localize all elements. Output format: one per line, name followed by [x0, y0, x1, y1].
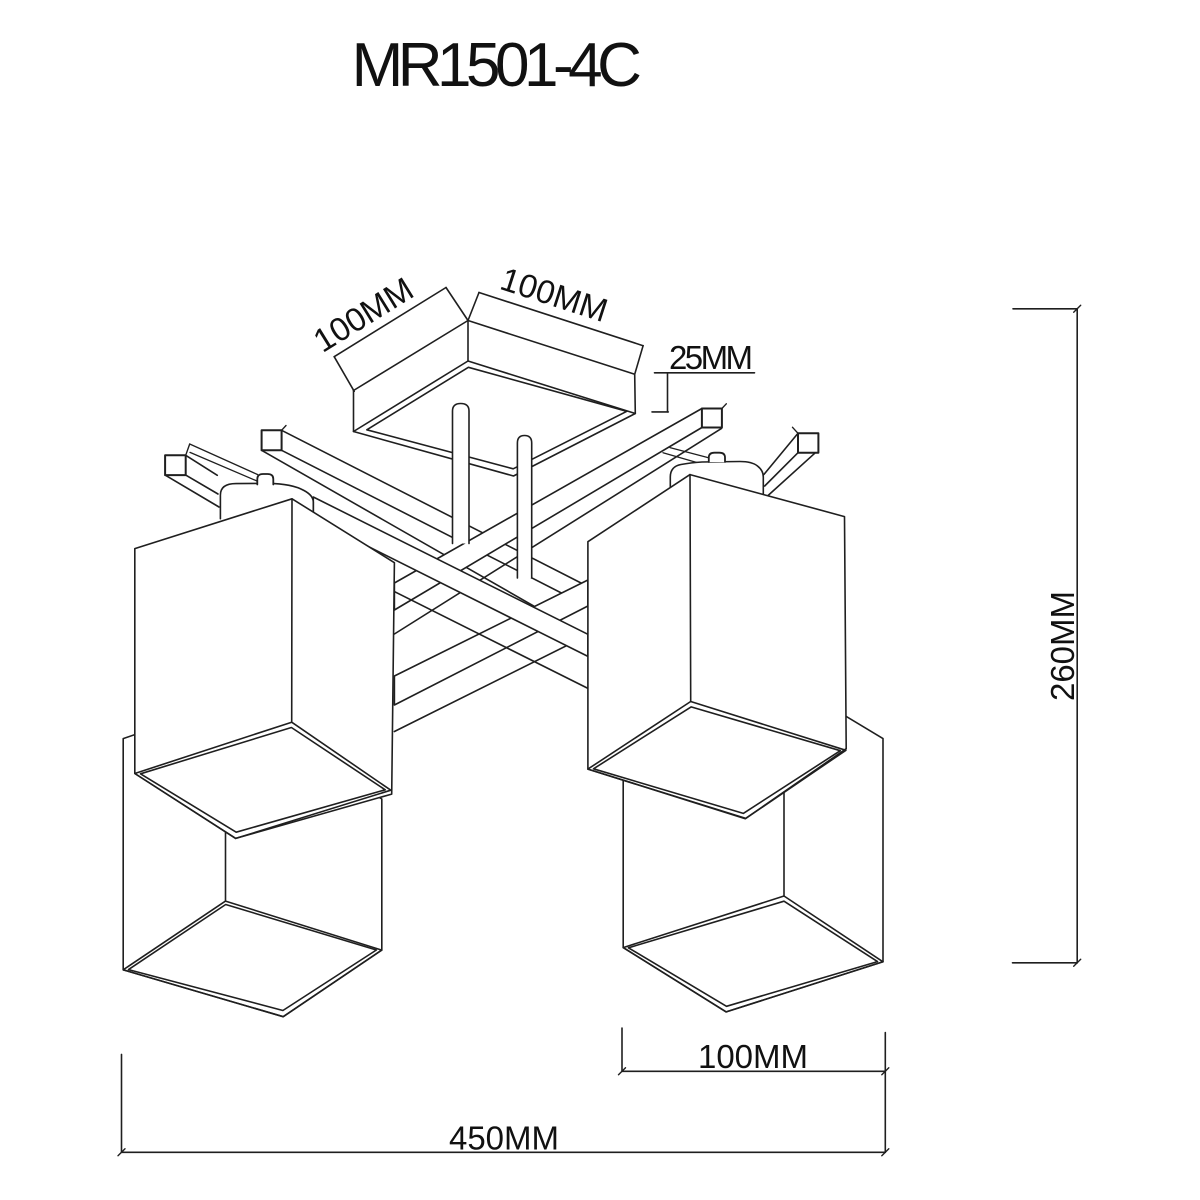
svg-text:450MM: 450MM [449, 1120, 559, 1157]
svg-text:MR1501-4C: MR1501-4C [352, 31, 640, 100]
svg-text:25MM: 25MM [669, 339, 753, 376]
svg-text:100MM: 100MM [698, 1038, 808, 1075]
svg-text:260MM: 260MM [1044, 591, 1081, 701]
